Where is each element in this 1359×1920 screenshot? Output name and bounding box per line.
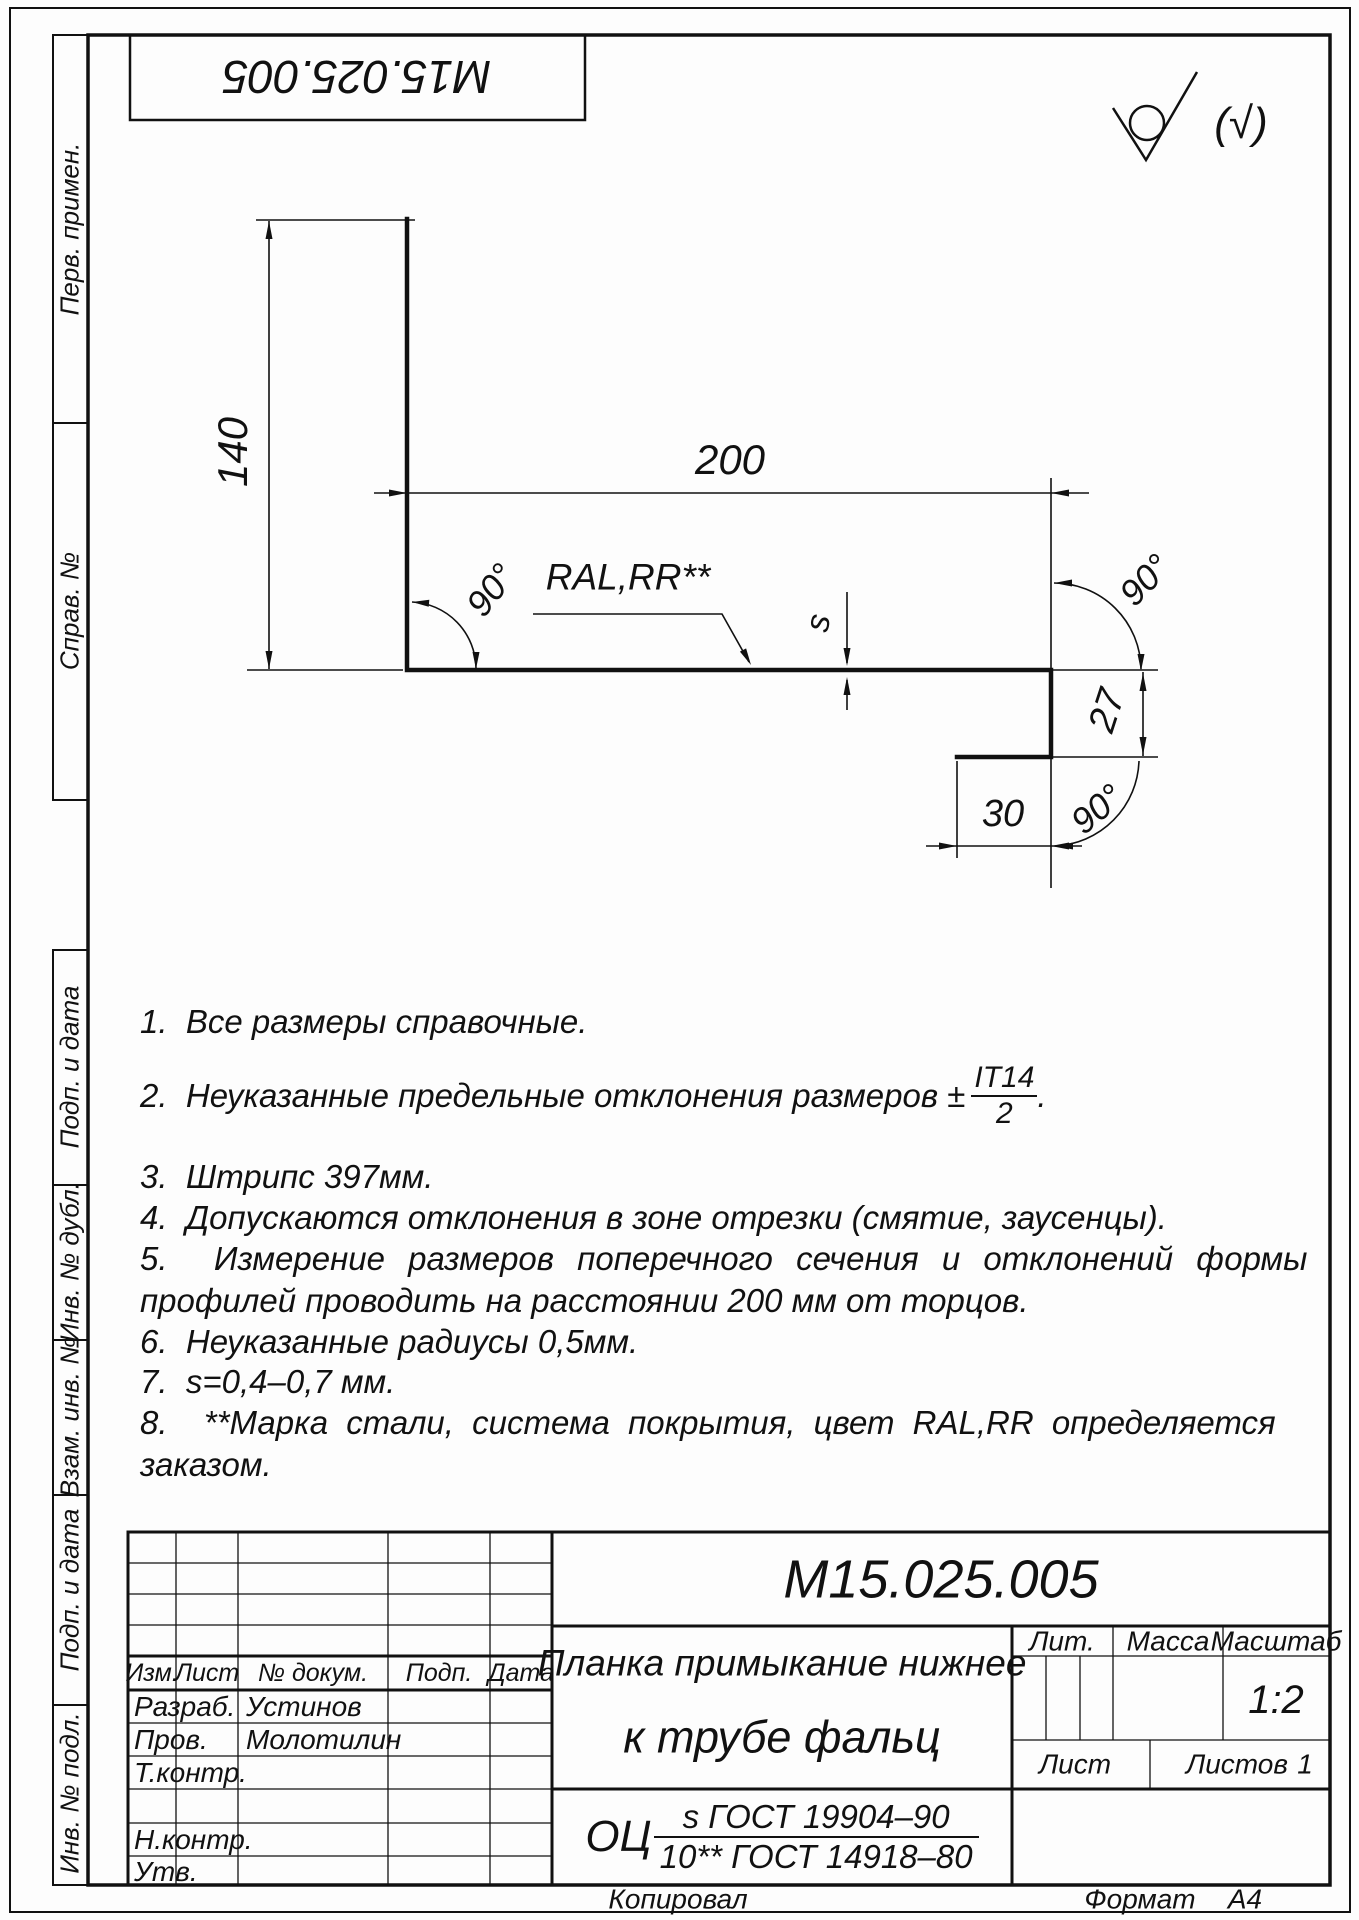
- stamp-inv-dubl: Инв. № дубл.: [56, 1182, 83, 1342]
- utv-label: Утв.: [134, 1857, 198, 1886]
- scale-value: 1:2: [1248, 1679, 1304, 1721]
- note-2-fraction-denominator: 2: [996, 1097, 1013, 1131]
- dim-width: 200: [695, 438, 765, 482]
- listov-label: Листов: [1186, 1749, 1288, 1778]
- roughness-icon: [1113, 72, 1197, 160]
- dimension-lines: [247, 220, 1158, 888]
- col-doc: № докум.: [258, 1660, 368, 1686]
- razrab-value: Устинов: [246, 1692, 362, 1721]
- part-name-line2: к трубе фальц: [623, 1713, 940, 1760]
- material-fraction: s ГОСТ 19904–90 10** ГОСТ 14918–80: [654, 1798, 979, 1876]
- coating-label: RAL,RR**: [546, 559, 711, 598]
- masshtab-label: Масштаб: [1211, 1626, 1342, 1655]
- dim-height: 140: [211, 417, 255, 487]
- note-1: 1. Все размеры справочные.: [140, 1005, 587, 1040]
- lit-label: Лит.: [1029, 1626, 1095, 1655]
- designation: M15.025.005: [783, 1552, 1098, 1609]
- note-2: 2. Неуказанные предельные отклонения раз…: [140, 1056, 1047, 1136]
- massa-label: Масса: [1127, 1626, 1210, 1655]
- roughness-note: (√): [1214, 101, 1267, 147]
- drawing-sheet: M15.025.005 (√) 140 200 RAL,RR** 90° s 9…: [0, 0, 1359, 1920]
- col-list: Лист: [175, 1660, 239, 1686]
- kopiroval-label: Копировал: [608, 1884, 747, 1913]
- tkontr-label: Т.контр.: [134, 1758, 247, 1787]
- col-izm: Изм.: [125, 1660, 178, 1686]
- note-3: 3. Штрипс 397мм.: [140, 1160, 433, 1195]
- inner-frame: [88, 35, 1330, 1885]
- prov-label: Пров.: [134, 1725, 208, 1754]
- part-name-line1: Планка примыкание нижнее: [538, 1645, 1027, 1684]
- note-6: 6. Неуказанные радиусы 0,5мм.: [140, 1325, 638, 1360]
- note-2-fraction: IT14 2: [971, 1061, 1037, 1131]
- stamp-vzam-inv: Взам. инв. №: [56, 1337, 83, 1498]
- material-denominator: 10** ГОСТ 14918–80: [654, 1836, 979, 1876]
- note-2-fraction-numerator: IT14: [971, 1061, 1037, 1097]
- top-number: M15.025.005: [223, 53, 492, 101]
- nkontr-label: Н.контр.: [134, 1825, 253, 1854]
- note-7: 7. s=0,4–0,7 мм.: [140, 1365, 395, 1400]
- note-2-period: .: [1037, 1077, 1046, 1115]
- prov-value: Молотилин: [246, 1725, 401, 1754]
- razrab-label: Разраб.: [134, 1692, 235, 1721]
- note-2-text: 2. Неуказанные предельные отклонения раз…: [140, 1077, 965, 1115]
- list-label: Лист: [1039, 1749, 1111, 1778]
- note-4: 4. Допускаются отклонения в зоне отрезки…: [140, 1201, 1167, 1236]
- note-5-line1: 5. Измерение размеров поперечного сечени…: [140, 1242, 1307, 1277]
- format-value: А4: [1228, 1884, 1262, 1913]
- stamp-perv-primen: Перв. примен.: [56, 143, 83, 316]
- stamp-sprav-no: Справ. №: [56, 552, 83, 670]
- note-8-line1: 8. **Марка стали, система покрытия, цвет…: [140, 1406, 1276, 1441]
- col-data: Дата: [488, 1660, 554, 1686]
- col-podp: Подп.: [406, 1660, 473, 1686]
- stamp-podp-data-2: Подп. и дата: [56, 1509, 83, 1672]
- note-5-line2: профилей проводить на расстоянии 200 мм …: [140, 1284, 1029, 1319]
- material-cell: ОЦ s ГОСТ 19904–90 10** ГОСТ 14918–80: [556, 1792, 1008, 1882]
- stamp-podp-data-1: Подп. и дата: [56, 986, 83, 1149]
- format-label: Формат: [1084, 1884, 1195, 1913]
- note-8-line2: заказом.: [140, 1448, 272, 1483]
- profile-outline: [407, 219, 1051, 757]
- dim-hem: 30: [982, 795, 1024, 835]
- listov-value: 1: [1297, 1749, 1313, 1778]
- material-prefix: ОЦ: [585, 1812, 651, 1862]
- material-numerator: s ГОСТ 19904–90: [679, 1798, 954, 1836]
- stamp-inv-podl: Инв. № подл.: [56, 1712, 83, 1873]
